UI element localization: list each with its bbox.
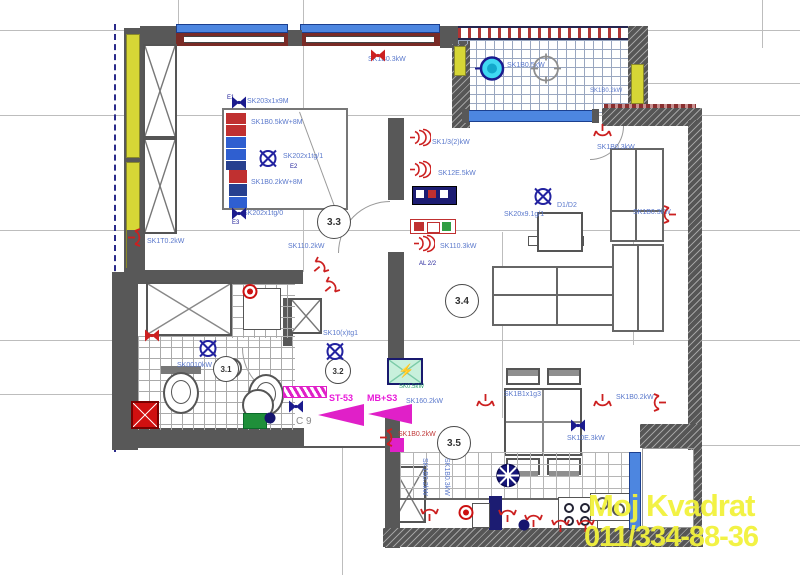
plan-label: MB+S3 [367, 394, 397, 403]
wall-socket-icon [378, 428, 398, 453]
room-number-badge: 3.5 [437, 426, 471, 460]
plan-label: E2 [290, 164, 297, 170]
plan-label: SK1B0.3kW [597, 144, 635, 151]
wall-socket-icon [551, 514, 576, 534]
room-number-badge: 3.4 [445, 284, 479, 318]
junction-navy-icon [231, 206, 247, 227]
plan-label: SK0.5kW [399, 384, 424, 390]
floor-plan-canvas: ⚡ 3.13.23.33.43.5E1SK203x1x9MSK1B0.5kW+8… [0, 0, 800, 575]
wall-socket-icon [658, 200, 678, 225]
junction-red-icon [370, 48, 386, 69]
round-light-icon [530, 53, 562, 90]
plan-label: SK12E.5kW [438, 170, 476, 177]
plan-label: AL 2/2 [419, 261, 436, 267]
ceiling-light-icon [324, 341, 346, 368]
room-number-badge: 3.3 [317, 205, 351, 239]
wall-socket-icon [524, 509, 549, 529]
valve-icon [458, 505, 474, 526]
triple-socket-icon [409, 127, 431, 154]
downlight-icon [264, 411, 276, 429]
plan-label: SK203x1x9M [247, 98, 289, 105]
ceiling-light-icon [532, 186, 554, 213]
plan-label: SK160.2kW [406, 398, 443, 405]
wall-socket-icon [588, 122, 613, 142]
plan-label: SK1B0.2kW [421, 458, 428, 496]
plan-label: SK202x1tg/1 [283, 153, 323, 160]
plan-label: SK1B0.3kW [443, 458, 450, 496]
ceiling-light-icon [257, 148, 279, 175]
plan-label: SK1B0.2kW [590, 88, 622, 94]
watermark-line1: Moj Kvadrat [588, 488, 754, 524]
triple-socket-icon [413, 233, 435, 260]
junction-navy-icon [288, 399, 304, 420]
watermark-line2: 011/334-88-36 [584, 521, 758, 554]
plan-label: SK1/3(2)kW [432, 139, 470, 146]
plan-label: SK110.2kW [288, 243, 324, 250]
valve-icon [242, 284, 258, 305]
junction-navy-icon [231, 95, 247, 116]
plan-label: ST-53 [329, 394, 353, 403]
plan-label: SK202x1tg/0 [243, 210, 283, 217]
triple-socket-icon [409, 159, 431, 186]
wall-socket-icon [648, 388, 668, 413]
terrace-lamp-icon [475, 54, 505, 89]
plan-label: SK1B1x1g3 [504, 391, 541, 398]
wall-socket-icon [498, 504, 523, 524]
plan-label: SK1T0.2kW [147, 238, 184, 245]
plan-label: SK1B0.5kW+8M [251, 119, 303, 126]
junction-navy-icon [570, 418, 586, 439]
wall-socket-icon [420, 503, 445, 523]
junction-red-icon [144, 328, 160, 349]
plan-label: SK1B0.2kW [398, 431, 436, 438]
plan-label: SK1B0.2kW+8M [251, 179, 303, 186]
wall-socket-icon [471, 392, 496, 412]
fan-light-icon [495, 463, 521, 494]
wall-socket-icon [588, 392, 613, 412]
plan-label: SK10(x)tg1 [323, 330, 358, 337]
plan-label: SK110.3kW [440, 243, 476, 250]
wall-socket-icon [126, 228, 146, 253]
plan-label: D1/D2 [557, 202, 577, 209]
ceiling-light-icon [197, 338, 219, 365]
